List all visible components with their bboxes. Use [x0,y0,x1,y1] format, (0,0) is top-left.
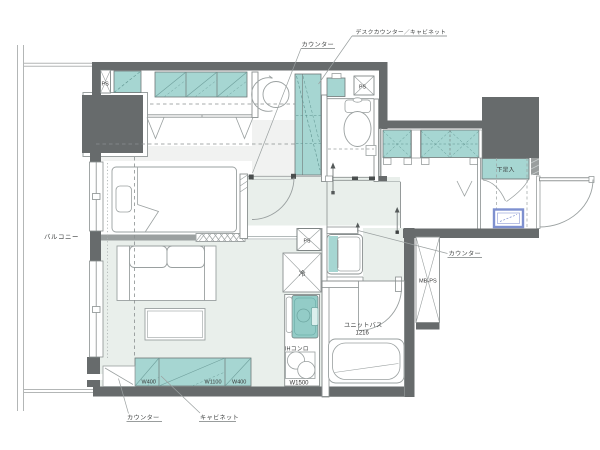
svg-text:W1500: W1500 [290,381,310,387]
svg-text:PS: PS [304,239,311,245]
svg-text:MB-PS: MB-PS [419,279,437,285]
svg-text:W1100: W1100 [205,380,222,386]
svg-text:PS: PS [359,85,366,91]
svg-text:W400: W400 [232,380,246,386]
svg-text:W400: W400 [142,380,156,386]
svg-text:1216: 1216 [356,331,370,337]
svg-text:PS: PS [102,82,110,88]
